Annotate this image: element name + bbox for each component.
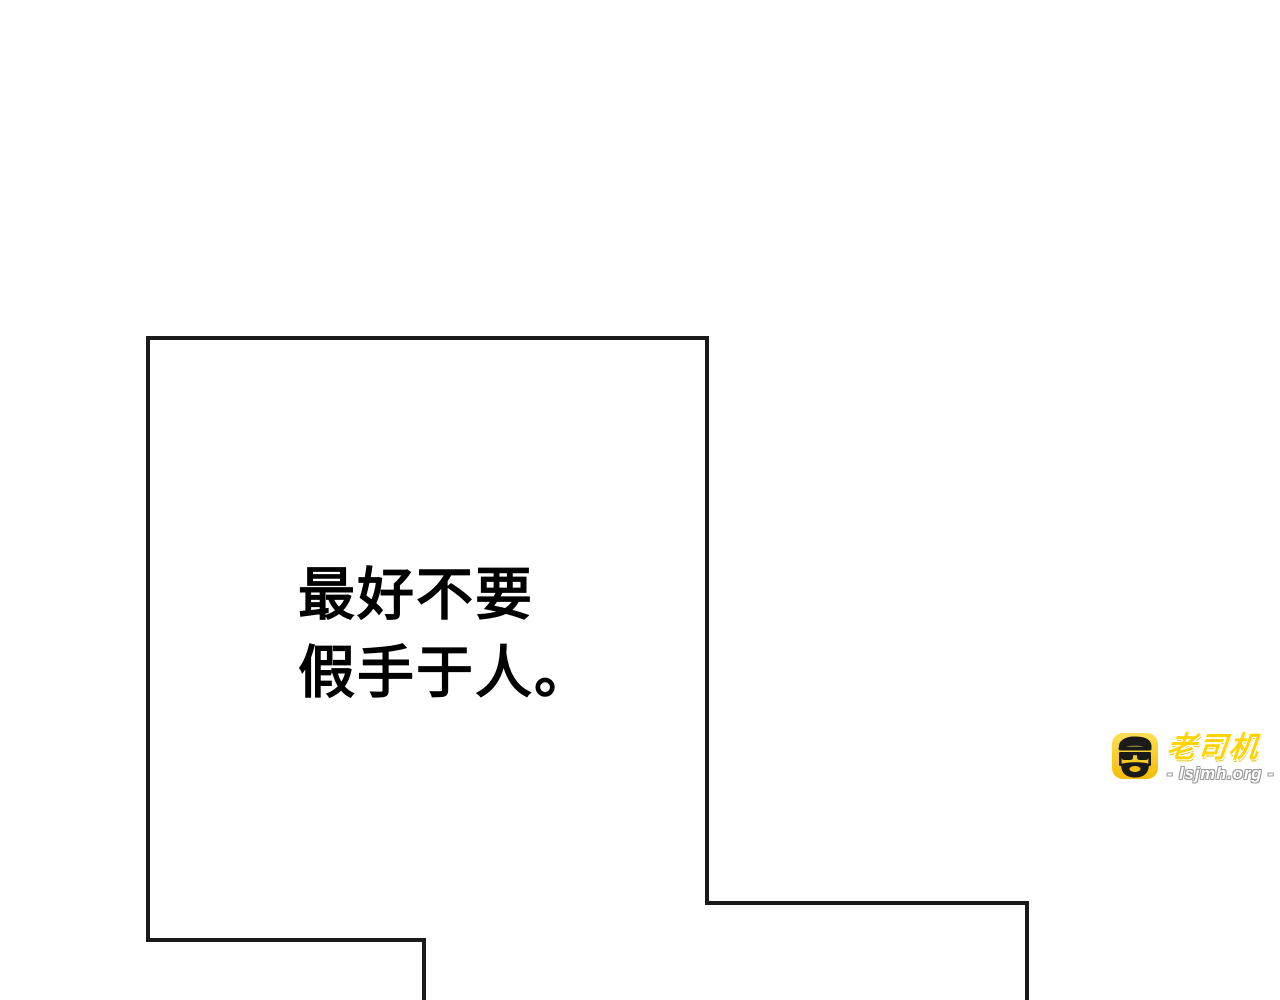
watermark-texts: 老司机 - lsjmh.org - xyxy=(1167,733,1274,784)
watermark-brand: 老司机 xyxy=(1166,734,1276,762)
speech-line-2: 假手于人。 xyxy=(298,634,593,712)
driver-face-icon xyxy=(1112,733,1158,779)
panel-border xyxy=(0,0,1280,1000)
watermark-site-url: - lsjmh.org - xyxy=(1167,765,1274,784)
speech-text: 最好不要 假手于人。 xyxy=(298,556,593,712)
comic-page: 最好不要 假手于人。 xyxy=(0,0,1280,1000)
speech-line-1: 最好不要 xyxy=(298,556,593,634)
site-watermark: 老司机 - lsjmh.org - xyxy=(1112,733,1274,784)
